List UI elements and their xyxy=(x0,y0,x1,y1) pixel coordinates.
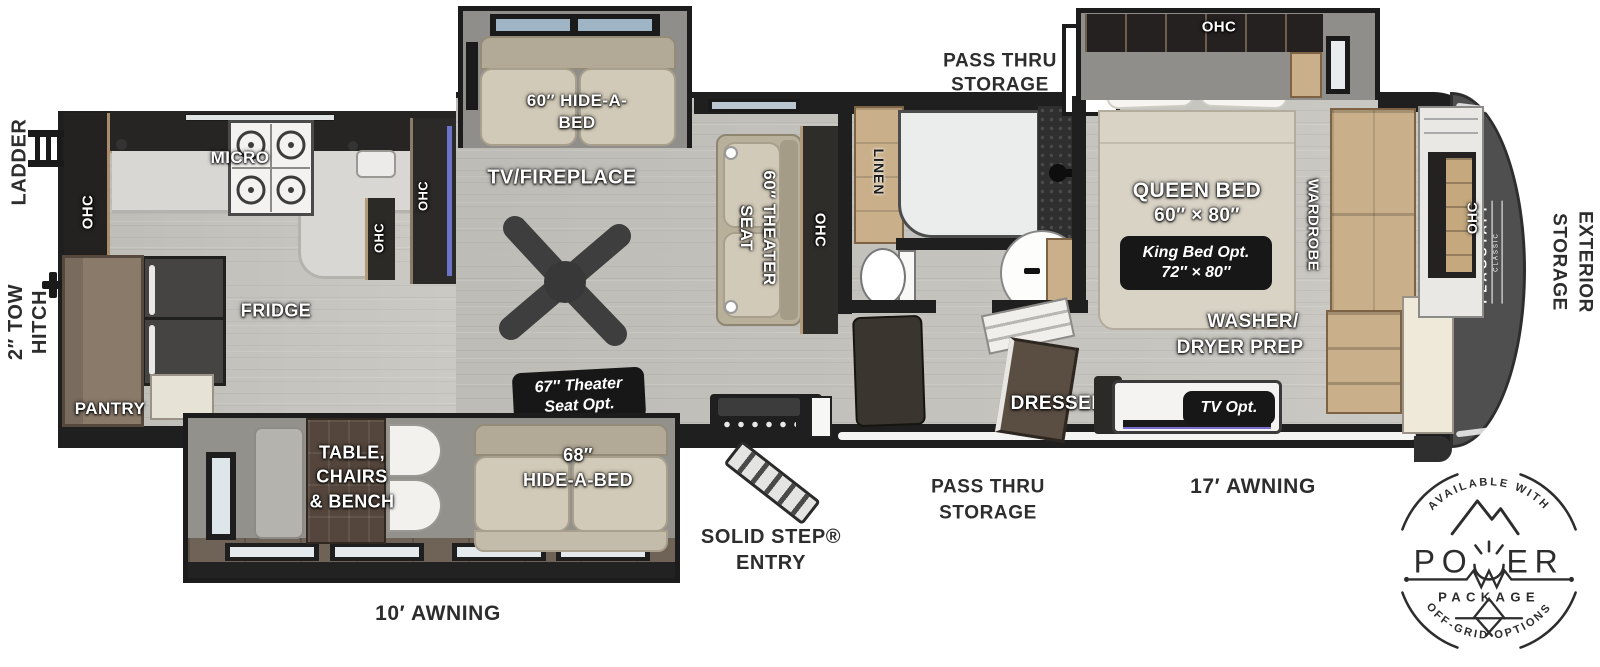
washer-label-line2: DRYER PREP xyxy=(1177,337,1304,359)
hab68-line2: HIDE-A-BED xyxy=(523,468,633,493)
pass-thru-bottom-line2: STORAGE xyxy=(931,500,1045,526)
power-package-badge: AVAILABLE WITH PO ER PACKAGE OFF-GRID OP… xyxy=(1392,464,1586,658)
linen-label: LINEN xyxy=(871,149,887,196)
dinette-label: TABLE, CHAIRS & BENCH xyxy=(310,441,395,514)
stove-icon xyxy=(228,120,314,216)
hide-a-bed-68-label: 68″ HIDE-A-BED xyxy=(523,443,633,493)
queen-bed-label: QUEEN BED 60″ × 80″ xyxy=(1133,177,1261,229)
hide-a-bed-60-label: 60″ HIDE-A- BED xyxy=(527,90,627,134)
pantry-label: PANTRY xyxy=(75,399,145,419)
dinette-line1: TABLE, xyxy=(310,441,395,465)
badge-power-right: ER xyxy=(1506,544,1564,580)
awning-17-label: 17′ AWNING xyxy=(1190,475,1316,499)
bedroom-slide-window xyxy=(1326,36,1350,94)
dresser xyxy=(995,337,1079,443)
dinette-chair-2 xyxy=(388,479,442,532)
bedroom-left-wall xyxy=(1072,96,1086,306)
floorplan-diagram: FLAGSTAFF CLASSIC LADDER 2″ TOW HITCH OH… xyxy=(0,0,1600,667)
entry-platform xyxy=(710,394,822,440)
sofa60-back xyxy=(480,36,676,70)
solid-step-label: SOLID STEP® ENTRY xyxy=(701,524,841,576)
tv-screen xyxy=(447,126,452,276)
entertainment-ohc-label: OHC xyxy=(417,181,432,211)
shower-pan xyxy=(898,110,1040,238)
pass-thru-top-line2: STORAGE xyxy=(943,73,1057,97)
micro-label: MICRO xyxy=(211,148,270,168)
svg-text:OFF-GRID OPTIONS: OFF-GRID OPTIONS xyxy=(1424,601,1555,642)
awning-roller-end xyxy=(1414,436,1452,462)
hab68-line1: 68″ xyxy=(523,443,633,468)
fridge-icon xyxy=(142,256,226,386)
rear-ohc-cabinet xyxy=(64,113,110,255)
slide1-window xyxy=(490,14,660,36)
kitchen-peninsula xyxy=(298,207,368,279)
pass-thru-bottom-label: PASS THRU STORAGE xyxy=(931,474,1045,525)
exterior-storage-label: EXTERIOR STORAGE xyxy=(1546,211,1597,313)
kitchen-sink xyxy=(356,150,396,178)
kitchen-faucet xyxy=(348,141,358,151)
entry-stairs-icon xyxy=(724,440,821,525)
living-window-glass xyxy=(712,102,796,109)
counter-knob xyxy=(116,139,127,150)
solid-step-line1: SOLID STEP® xyxy=(701,524,841,550)
badge-off-grid: OFF-GRID OPTIONS xyxy=(1424,601,1555,642)
dinette-chair-1 xyxy=(388,424,442,477)
hab60-line1: 60″ HIDE-A- xyxy=(527,90,627,112)
tv-opt-text: TV Opt. xyxy=(1183,398,1275,418)
brand-series: CLASSIC xyxy=(1492,200,1503,303)
slide1-side-window xyxy=(466,42,478,110)
badge-power-left: PO xyxy=(1414,544,1474,580)
toilet-icon xyxy=(860,246,920,308)
bath-bottom-wall-left xyxy=(852,300,936,313)
front-ohc-label: OHC xyxy=(1464,202,1480,234)
theater-line1: 60″ THEATER xyxy=(757,170,780,285)
theater-seat-label: 60″ THEATER SEAT xyxy=(734,170,780,285)
tv-option-badge: TV Opt. xyxy=(1183,391,1275,425)
queen-line2: 60″ × 80″ xyxy=(1133,204,1261,229)
svg-text:AVAILABLE WITH: AVAILABLE WITH xyxy=(1426,476,1552,513)
wardrobe-label: WARDROBE xyxy=(1304,179,1321,271)
bath-left-wall xyxy=(838,96,852,314)
badge-mountains-icon xyxy=(1452,501,1518,534)
king-bed-option-badge: King Bed Opt. 72″ × 80″ xyxy=(1120,236,1272,290)
bottom-wall-left xyxy=(58,426,190,448)
exterior-storage-line1: EXTERIOR xyxy=(1572,211,1598,313)
badge-available-with: AVAILABLE WITH xyxy=(1426,476,1552,513)
pass-thru-bottom-line1: PASS THRU xyxy=(931,474,1045,500)
dinette-window-1 xyxy=(225,543,319,561)
dinette-line3: & BENCH xyxy=(310,489,395,513)
dresser-label: DRESSER xyxy=(1011,393,1106,415)
washer-label-line1: WASHER/ xyxy=(1207,311,1298,333)
theater-ohc-label: OHC xyxy=(811,213,828,248)
tv-fireplace-label: TV/FIREPLACE xyxy=(487,167,636,190)
badge-sun-icon xyxy=(1474,542,1503,580)
hab60-line2: BED xyxy=(527,112,627,134)
theater-line2: SEAT xyxy=(734,170,757,285)
dinette-slide-skirt xyxy=(188,562,675,578)
dinette-bench xyxy=(254,427,304,539)
washer-prep-drawers xyxy=(1326,310,1402,414)
king-line1: King Bed Opt. xyxy=(1120,243,1272,263)
king-line2: 72″ × 80″ xyxy=(1120,263,1272,283)
vanity-faucet xyxy=(1024,268,1040,274)
bedroom-nightstand xyxy=(1290,52,1322,98)
exterior-storage-line2: STORAGE xyxy=(1546,211,1572,313)
fridge-label: FRIDGE xyxy=(241,301,311,322)
awning-10-label: 10′ AWNING xyxy=(375,602,501,626)
dinette-window-2 xyxy=(330,543,424,561)
ladder-icon xyxy=(28,128,66,178)
island-ohc-label: OHC xyxy=(373,223,388,253)
wardrobe-cabinet xyxy=(1330,108,1416,314)
bedroom-ohc-label: OHC xyxy=(1202,18,1237,35)
entry-threshold xyxy=(810,396,832,438)
dinette-line2: CHAIRS xyxy=(310,465,395,489)
solid-step-line2: ENTRY xyxy=(701,550,841,576)
pass-thru-top-label: PASS THRU STORAGE xyxy=(943,49,1057,97)
tow-hitch-line1: 2″ TOW xyxy=(4,284,28,360)
ceiling-fan-icon xyxy=(488,205,643,360)
dinette-left-window xyxy=(206,452,236,540)
pass-thru-top-line1: PASS THRU xyxy=(943,49,1057,73)
entry-closet xyxy=(852,315,926,427)
rear-ohc-label: OHC xyxy=(79,195,96,230)
queen-line1: QUEEN BED xyxy=(1133,177,1261,204)
sofa68-front xyxy=(474,530,668,552)
